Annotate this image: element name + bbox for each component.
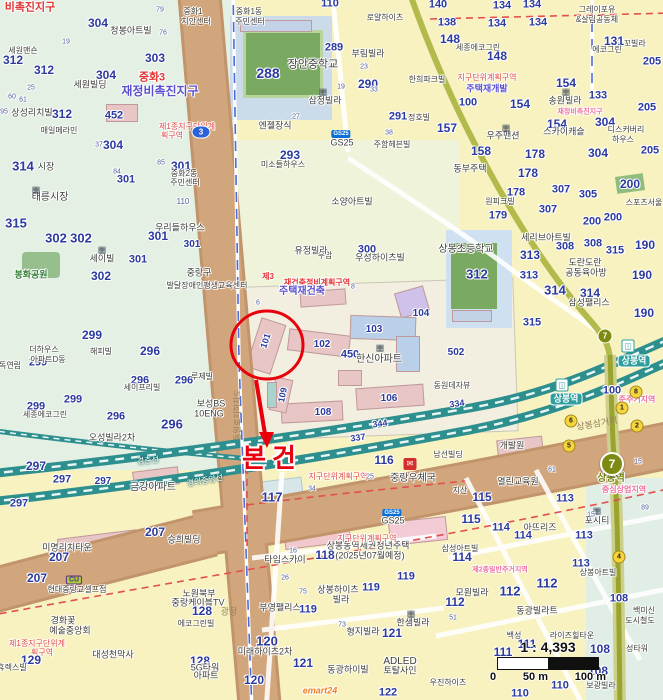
map-label: 200 bbox=[604, 213, 622, 224]
map-label: 314 bbox=[544, 284, 566, 297]
map-label: 337 bbox=[350, 432, 366, 443]
map-label: 세종에코그린 bbox=[23, 411, 67, 419]
map-label: 동광빌라트 bbox=[516, 607, 557, 616]
map-label: 112 bbox=[445, 596, 464, 608]
map-label: 봉화공원 bbox=[14, 271, 47, 280]
subway-exit-badge: 5 bbox=[563, 440, 576, 453]
map-label: 동광하이빌 bbox=[327, 666, 368, 675]
map-label: 300 bbox=[358, 245, 376, 256]
map-label: 102 bbox=[314, 340, 331, 350]
map-label: 중랑구 bbox=[187, 269, 212, 278]
map-label: 6 bbox=[256, 300, 260, 307]
map-label: 301 bbox=[117, 175, 135, 186]
map-label: 297 bbox=[26, 460, 46, 472]
map-label: 제2종일반주거지역 bbox=[472, 567, 527, 574]
map-label: 179 bbox=[489, 211, 507, 222]
map-label: 매일메라민 bbox=[41, 127, 78, 135]
map-label: 109 bbox=[277, 387, 289, 404]
map-label: 299 bbox=[64, 395, 82, 406]
map-label: 공동육아방 bbox=[565, 269, 606, 278]
map-label: 장안중학교 bbox=[288, 60, 339, 71]
map-label: 121 bbox=[293, 657, 313, 669]
map-label: 79 bbox=[156, 7, 164, 14]
map-label: 10ENG bbox=[194, 410, 224, 419]
map-label: 대성천막사 bbox=[92, 651, 133, 660]
map-label: 119 bbox=[299, 605, 317, 616]
map-label: 313 bbox=[520, 271, 538, 282]
map-label: 120 bbox=[244, 674, 264, 686]
map-label: 297 bbox=[95, 477, 112, 487]
map-label: 스포츠서울 bbox=[626, 199, 663, 207]
map-label: 121 bbox=[382, 627, 402, 639]
map-label: 도란도란 bbox=[568, 259, 601, 268]
map-label: 도시철도 bbox=[625, 617, 654, 625]
map-label: 200 bbox=[583, 217, 601, 228]
map-label: 119 bbox=[362, 583, 380, 594]
map-label: 110 bbox=[177, 198, 190, 206]
map-label: 원피크빌 bbox=[485, 198, 514, 206]
map-label: 288 bbox=[256, 66, 279, 80]
map-label: 76 bbox=[159, 30, 167, 37]
map-label: 엔젤장식 bbox=[258, 122, 291, 131]
map-label: 23 bbox=[360, 64, 368, 71]
route-shield: 3 bbox=[192, 126, 211, 139]
map-label: 60 bbox=[8, 94, 16, 101]
map-label: 103 bbox=[366, 325, 383, 335]
train-icon: ◫ bbox=[556, 379, 569, 392]
map-label: 19 bbox=[62, 39, 70, 46]
building-icon: ▦ bbox=[407, 610, 416, 619]
line7-station-icon-small: 7 bbox=[598, 329, 613, 344]
map-label: 25 bbox=[27, 85, 35, 92]
map-label: 134 bbox=[523, 0, 541, 11]
map-label: 청봉아트빌 bbox=[110, 27, 151, 36]
map-label: 108 bbox=[315, 408, 332, 418]
map-label: 15 bbox=[634, 459, 642, 466]
map-label: 삼성팰리스 bbox=[568, 299, 609, 308]
map-label: 85 bbox=[157, 160, 165, 167]
subway-exit-badge: 8 bbox=[630, 386, 643, 399]
map-label: 304 bbox=[103, 139, 123, 151]
train-icon: ◫ bbox=[622, 340, 635, 353]
map-label: 제1종지구단위계 bbox=[9, 640, 65, 648]
map-label: GS25 bbox=[381, 517, 404, 526]
map-label: 315 bbox=[523, 318, 541, 329]
map-label: 금강아파트 bbox=[130, 483, 176, 493]
map-label: 아파트D동 bbox=[30, 356, 65, 364]
map-label: 열린교육원 bbox=[497, 478, 538, 487]
railway-name-label: 경의중앙선 bbox=[186, 474, 224, 488]
map-label: 502 bbox=[448, 348, 465, 358]
map-label: 89 bbox=[641, 505, 649, 512]
map-label: 삼정빌라 bbox=[308, 97, 341, 106]
map-label: 207 bbox=[27, 572, 47, 584]
map-label: 75 bbox=[299, 589, 307, 596]
map-label: 61 bbox=[548, 467, 556, 474]
map-label: 112 bbox=[537, 577, 558, 590]
map-label: 중화2동 bbox=[171, 170, 198, 178]
map-label: 37 bbox=[95, 142, 103, 149]
road-name-label: 동일로지하차도 bbox=[234, 389, 242, 441]
map-label: 291 bbox=[389, 112, 407, 123]
map-label: 114 bbox=[492, 523, 510, 534]
map-label: 157 bbox=[437, 122, 457, 134]
map-label: 200 bbox=[620, 178, 640, 190]
map-label: 지구단위계획구역 bbox=[338, 535, 397, 543]
map-label: 122 bbox=[379, 688, 397, 699]
map-label: 16 bbox=[289, 548, 297, 555]
map-label: 중랑우체국 bbox=[390, 474, 436, 484]
map-label: 아파트 bbox=[194, 672, 219, 681]
map-label: 106 bbox=[381, 394, 398, 404]
subway-exit-badge: 4 bbox=[613, 551, 626, 564]
map-label: 133 bbox=[589, 91, 607, 102]
map-label: 314 bbox=[12, 160, 34, 173]
map-label: 27 bbox=[292, 114, 300, 121]
map-label: 61 bbox=[19, 97, 27, 104]
map-label: 26 bbox=[281, 575, 289, 582]
map-label: 상봉초등학교 bbox=[438, 245, 493, 255]
map-label: 주택재건축 bbox=[279, 287, 325, 297]
map-label: 에코그린 bbox=[592, 46, 621, 54]
map-label: 110 bbox=[511, 689, 529, 700]
map-label: 158 bbox=[471, 145, 491, 157]
map-label: 134 bbox=[493, 1, 511, 12]
map-label: 부림빌라 bbox=[351, 50, 384, 59]
map-label: 207 bbox=[49, 551, 69, 563]
map-label: 오성빌라2차 bbox=[89, 434, 135, 443]
map-label: 301 bbox=[129, 255, 147, 266]
map-label: 128 bbox=[192, 605, 212, 617]
map-label: 유정빌라 bbox=[294, 247, 327, 256]
map-label: 51 bbox=[449, 615, 457, 622]
map-label: 296 bbox=[161, 418, 183, 431]
subway-exit-badge: 1 bbox=[616, 402, 629, 415]
map-label: 19 bbox=[337, 84, 345, 91]
map-label: 보광빌라 bbox=[586, 682, 615, 690]
line7-station-icon: 7 bbox=[600, 452, 624, 476]
map-label: 우진하이츠 bbox=[430, 679, 467, 687]
map-label: 스카이캐슬 bbox=[543, 128, 584, 137]
map-label: 344 bbox=[372, 418, 388, 429]
map-label: 타임스카이 bbox=[264, 556, 305, 565]
map-label: 116 bbox=[374, 454, 393, 466]
map-label: 134 bbox=[488, 19, 506, 30]
map-label: 312 bbox=[466, 268, 488, 281]
map-label: 138 bbox=[438, 18, 456, 29]
map-label: 205 bbox=[638, 103, 656, 114]
map-label: 중화3 bbox=[139, 73, 165, 84]
map-label: 293 bbox=[280, 149, 300, 161]
map-label: 발달장애인평생교육센터 bbox=[167, 282, 248, 290]
map-label: 태릉시장 bbox=[32, 193, 69, 203]
map-label: 315 bbox=[5, 217, 27, 230]
map-label: 비촉진지구 bbox=[5, 3, 56, 14]
map-label: 308 bbox=[584, 239, 602, 250]
map-label: 상봉아트빌 bbox=[580, 569, 617, 577]
map-label: 178 bbox=[525, 148, 545, 160]
map-label: 디스커버리 bbox=[608, 126, 645, 134]
label-layer: 비촉진지구304청봉아트빌79중화1치안센터76303312312세원맨숀606… bbox=[0, 0, 663, 700]
map-label: 주택재개발 bbox=[466, 85, 507, 94]
map-label: 154 bbox=[510, 98, 530, 110]
subway-exit-badge: 2 bbox=[631, 420, 644, 433]
map-label: 더하우스 bbox=[29, 346, 58, 354]
map-label: 207 bbox=[145, 526, 165, 538]
map-label: 101 bbox=[259, 332, 272, 349]
map-label: 312 bbox=[34, 64, 54, 76]
map-label: 301 bbox=[184, 240, 201, 250]
map-label: 303 bbox=[145, 52, 165, 64]
map-label: 302 bbox=[91, 270, 111, 282]
map-label: 로얄하이츠 bbox=[367, 14, 404, 22]
map-label: 미소들하우스 bbox=[261, 161, 305, 169]
subject-annotation-label: 본건 bbox=[242, 445, 302, 471]
map-label: 289 bbox=[325, 43, 343, 54]
cu-store-icon: CU bbox=[66, 576, 82, 585]
map-label: 302 bbox=[70, 232, 92, 245]
map-label: 100 bbox=[459, 98, 477, 109]
map-label: &살림공동체 bbox=[576, 16, 618, 24]
map-label: 148 bbox=[487, 50, 507, 62]
map-label: 부영팰리스 bbox=[259, 604, 300, 613]
map-label: 중화1 bbox=[183, 8, 202, 16]
map-label: 지구단위계획구역 bbox=[309, 473, 368, 481]
map-label: 그레이포유 bbox=[579, 6, 616, 14]
map-label: 예술중앙회 bbox=[49, 627, 90, 636]
map-label: 299 bbox=[82, 329, 102, 341]
map-label: 315 bbox=[606, 246, 624, 257]
scale-bar-track bbox=[497, 657, 599, 670]
map-label: 34 bbox=[308, 486, 316, 493]
map-label: 38 bbox=[385, 130, 393, 137]
map-label: 동부주택 bbox=[453, 165, 486, 174]
map-label: 297 bbox=[10, 499, 28, 510]
map-label: 117 bbox=[262, 491, 283, 504]
map-label: 205 bbox=[641, 146, 659, 157]
map-label: 소양아트빌 bbox=[331, 198, 372, 207]
map-label: 100 bbox=[603, 386, 621, 397]
map-label: 상봉하이츠 bbox=[317, 586, 358, 595]
map-label: 205 bbox=[643, 57, 661, 68]
road-name-label: 광장 bbox=[221, 608, 238, 617]
map-label: 시장 bbox=[38, 163, 55, 172]
map-canvas[interactable]: 비촉진지구304청봉아트빌79중화1치안센터76303312312세원맨숀606… bbox=[0, 0, 663, 700]
map-label: 획구역 bbox=[161, 132, 183, 140]
scale-ticks: 0 50 m 100 m bbox=[490, 671, 606, 683]
map-label: 동원데자뷰 bbox=[434, 382, 471, 390]
map-label: 한신아파트 bbox=[356, 355, 402, 365]
map-label: 치안센터 bbox=[181, 18, 210, 26]
map-label: 304 bbox=[96, 69, 116, 81]
map-label: 미래하이츠2차 bbox=[238, 648, 293, 657]
map-label: 제3 bbox=[262, 273, 274, 281]
map-label: 190 bbox=[632, 269, 652, 281]
building-icon: ▦ bbox=[376, 344, 385, 353]
map-label: 휴렉스빌 bbox=[0, 664, 27, 672]
map-label: 상성리치빌 bbox=[11, 109, 52, 118]
map-label: 하우스 bbox=[612, 136, 634, 144]
map-label: 15 bbox=[587, 512, 595, 519]
map-label: 세이빌 bbox=[90, 255, 115, 264]
building-icon: ▦ bbox=[32, 186, 41, 195]
map-label: 에코그린빌 bbox=[178, 620, 215, 628]
map-label: 114 bbox=[514, 531, 532, 542]
map-label: 113 bbox=[556, 494, 574, 505]
building-icon: ▦ bbox=[319, 88, 328, 97]
scale-ratio: 1 : 4,393 bbox=[490, 640, 606, 654]
map-label: 134 bbox=[529, 18, 547, 29]
map-label: 113 bbox=[575, 531, 593, 542]
map-label: GS25 bbox=[330, 139, 353, 148]
map-label: 95 bbox=[0, 109, 8, 116]
map-label: 토탈사인 bbox=[383, 667, 416, 676]
map-label: 305 bbox=[579, 190, 597, 201]
map-label: 지구단위계획구역 bbox=[458, 74, 517, 82]
station-name-badge: 상봉역 bbox=[551, 394, 582, 405]
map-label: 190 bbox=[635, 239, 655, 251]
map-label: 140 bbox=[429, 0, 447, 11]
map-label: 모원빌라 bbox=[455, 589, 488, 598]
map-label: 현대중랑교셀프점 bbox=[48, 586, 107, 594]
map-label: 112 bbox=[500, 585, 521, 598]
map-label: 형지빌라 bbox=[346, 628, 379, 637]
building-icon: ▦ bbox=[98, 246, 107, 255]
map-label: 302 bbox=[45, 232, 67, 245]
map-label: 190 bbox=[634, 307, 654, 319]
map-label: 308 bbox=[556, 242, 574, 253]
map-label: 우주맨션 bbox=[486, 132, 519, 141]
map-label: 루제빌 bbox=[191, 373, 213, 381]
map-label: 지산 bbox=[453, 487, 468, 495]
scale-bar: 1 : 4,393 0 50 m 100 m bbox=[490, 640, 606, 683]
map-label: 25 bbox=[366, 474, 374, 481]
building-icon: ▦ bbox=[562, 88, 571, 97]
building-icon: ▦ bbox=[502, 124, 511, 133]
map-label: 296 bbox=[140, 345, 160, 357]
map-label: 307 bbox=[539, 205, 557, 216]
railway-name-label: 경춘선 bbox=[137, 456, 160, 466]
map-label: 해피빌 bbox=[90, 348, 112, 356]
station-name-badge: 상봉역 bbox=[619, 356, 650, 367]
map-label: 312 bbox=[3, 54, 23, 66]
map-label: 33 bbox=[370, 87, 378, 94]
subway-exit-badge: 6 bbox=[565, 415, 578, 428]
map-label: 8 bbox=[351, 284, 355, 291]
road-name-label: 상봉삼거리 bbox=[576, 416, 618, 432]
map-label: 119 bbox=[397, 572, 415, 583]
map-label: 312 bbox=[52, 108, 72, 120]
map-label: 73 bbox=[338, 622, 346, 629]
map-label: 178 bbox=[518, 167, 538, 179]
map-label: 110 bbox=[321, 0, 339, 10]
map-label: 한샘빌라 bbox=[396, 619, 429, 628]
map-label: 114 bbox=[452, 551, 471, 563]
map-label: 성타워 bbox=[626, 645, 648, 653]
map-label: 세이프리빌 bbox=[124, 384, 161, 392]
map-label: 경화꽃 bbox=[51, 617, 76, 626]
map-label: 주민센터 bbox=[170, 179, 199, 187]
map-label: 승희빌딩 bbox=[167, 536, 200, 545]
map-label: 296 bbox=[107, 412, 125, 423]
map-label: 452 bbox=[105, 111, 123, 122]
map-label: 중심상업지역 bbox=[602, 486, 646, 494]
map-label: 빌라 bbox=[333, 596, 350, 605]
map-label: 104 bbox=[413, 309, 430, 319]
map-label: 304 bbox=[88, 17, 108, 29]
map-label: 재정비촉진지구 bbox=[557, 109, 602, 116]
map-label: 송원빌라 bbox=[548, 97, 581, 106]
map-label: (2025년07월예정) bbox=[335, 552, 404, 561]
map-label: 304 bbox=[588, 147, 608, 159]
emart24-store-label: emart24 bbox=[303, 687, 338, 696]
map-label: 독연립 bbox=[0, 362, 21, 370]
map-label: 보성BS bbox=[197, 400, 226, 409]
map-label: 118 bbox=[315, 549, 334, 561]
map-label: 108 bbox=[610, 594, 628, 605]
map-label: 개발원 bbox=[500, 442, 525, 451]
map-label: 남선빌딩 bbox=[433, 451, 462, 459]
map-label: 301 bbox=[148, 230, 168, 242]
map-label: 115 bbox=[461, 513, 480, 525]
post-office-icon: ✉ bbox=[404, 458, 417, 470]
map-label: 중화1동 bbox=[236, 8, 263, 16]
map-label: 정호빌 bbox=[408, 114, 430, 122]
map-label: 334 bbox=[449, 398, 465, 409]
map-label: 백미신 bbox=[633, 607, 655, 615]
map-label: 297 bbox=[53, 475, 71, 486]
map-label: 115 bbox=[472, 491, 491, 503]
map-label: 세원맨숀 bbox=[8, 47, 37, 55]
map-label: 한희파크빌 bbox=[409, 76, 446, 84]
map-label: 주민센터 bbox=[235, 18, 264, 26]
map-label: 주함헤븐빌 bbox=[374, 141, 411, 149]
map-label: 313 bbox=[520, 249, 540, 261]
map-label: 307 bbox=[552, 185, 570, 196]
map-label: 재정비촉진지구 bbox=[121, 85, 198, 97]
